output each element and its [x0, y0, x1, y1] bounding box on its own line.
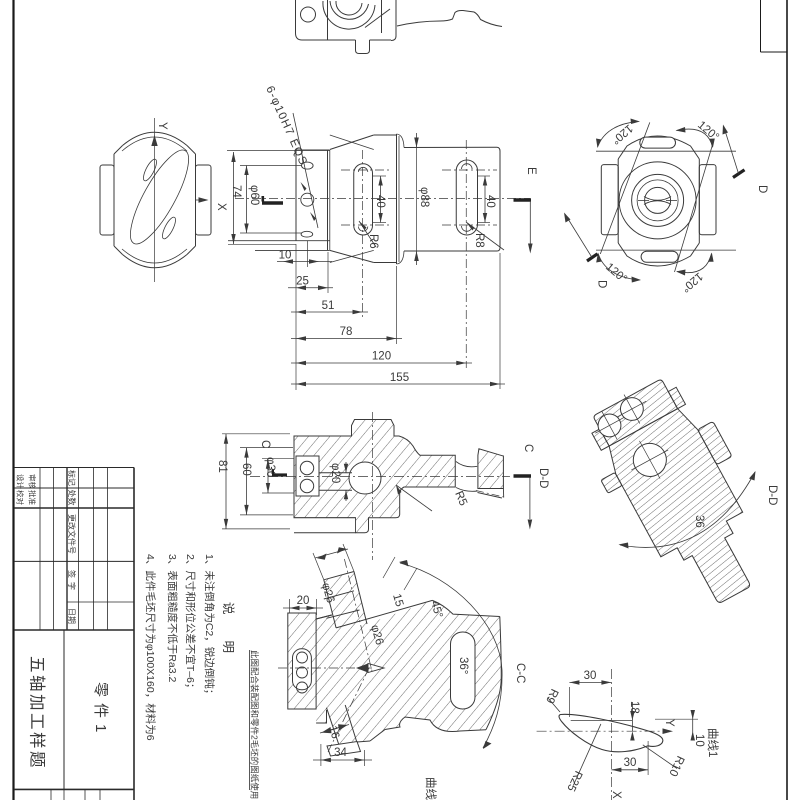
svg-text:φ60: φ60 [248, 185, 260, 205]
svg-text:120°: 120° [695, 119, 721, 143]
svg-text:C: C [522, 444, 534, 452]
svg-text:X: X [215, 203, 227, 211]
svg-text:R25: R25 [564, 769, 584, 793]
svg-text:60: 60 [240, 463, 252, 476]
svg-text:曲线1: 曲线1 [706, 728, 720, 757]
svg-text:批准: 批准 [28, 490, 38, 505]
svg-text:X: X [610, 791, 622, 799]
svg-text:零件1: 零件1 [92, 682, 109, 738]
svg-text:34: 34 [334, 747, 347, 759]
svg-text:校对: 校对 [16, 490, 26, 505]
svg-text:10: 10 [693, 734, 705, 747]
svg-text:C-C: C-C [514, 663, 526, 683]
svg-text:φ88: φ88 [418, 187, 430, 207]
svg-text:36: 36 [693, 515, 705, 528]
svg-text:15: 15 [390, 593, 405, 609]
svg-text:18: 18 [628, 701, 640, 714]
svg-text:120°: 120° [609, 122, 635, 146]
svg-text:说明: 说明 [221, 602, 236, 679]
svg-text:φ20: φ20 [329, 463, 341, 483]
svg-text:10: 10 [279, 250, 292, 262]
svg-text:R8: R8 [473, 233, 485, 248]
svg-text:81: 81 [216, 460, 228, 473]
svg-text:签字: 签字 [67, 570, 77, 594]
svg-text:审核: 审核 [28, 474, 38, 489]
svg-text:155: 155 [390, 372, 409, 384]
svg-text:D-D: D-D [537, 468, 549, 488]
svg-text:此图配合装配图和零件2毛坯的图纸使用: 此图配合装配图和零件2毛坯的图纸使用 [250, 650, 260, 799]
svg-text:78: 78 [340, 326, 353, 338]
svg-text:30: 30 [584, 670, 597, 682]
svg-text:D: D [756, 185, 768, 193]
svg-text:R9: R9 [543, 687, 560, 705]
svg-text:2、尺寸和形位公差不宜T–6；: 2、尺寸和形位公差不宜T–6； [184, 554, 197, 693]
svg-text:R5: R5 [452, 489, 469, 507]
svg-text:40: 40 [374, 195, 386, 208]
svg-text:Y: Y [156, 122, 168, 130]
svg-text:25: 25 [296, 276, 309, 288]
svg-text:51: 51 [322, 300, 335, 312]
svg-text:C: C [259, 440, 271, 448]
svg-text:设计: 设计 [16, 474, 26, 489]
svg-text:D-D: D-D [766, 485, 778, 505]
svg-text:处数: 处数 [67, 490, 77, 506]
svg-text:D: D [596, 280, 608, 288]
svg-text:五轴加工样题: 五轴加工样题 [28, 656, 47, 770]
svg-text:更改文件号: 更改文件号 [67, 514, 77, 554]
svg-text:R6: R6 [367, 234, 379, 249]
svg-text:6-φ10H7 EQS: 6-φ10H7 EQS [263, 84, 309, 167]
svg-text:36°: 36° [457, 657, 469, 674]
svg-text:曲线2: 曲线2 [424, 777, 438, 800]
svg-text:20: 20 [297, 595, 310, 607]
svg-text:R10: R10 [666, 754, 686, 778]
svg-text:Y: Y [663, 719, 675, 727]
svg-text:40: 40 [484, 195, 496, 208]
svg-text:4、此件毛坯尺寸为φ100X160，材料为6: 4、此件毛坯尺寸为φ100X160，材料为6 [144, 554, 157, 741]
svg-text:标记: 标记 [67, 470, 77, 486]
svg-text:74: 74 [230, 185, 242, 198]
svg-text:日期: 日期 [67, 608, 76, 624]
svg-text:E: E [525, 167, 537, 175]
svg-text:30: 30 [624, 757, 637, 769]
svg-text:3、表面粗糙度不低于Ra3.2: 3、表面粗糙度不低于Ra3.2 [166, 554, 179, 683]
svg-text:120: 120 [372, 351, 391, 363]
svg-text:1、未注倒角为C2，锐边倒钝；: 1、未注倒角为C2，锐边倒钝； [203, 554, 216, 699]
